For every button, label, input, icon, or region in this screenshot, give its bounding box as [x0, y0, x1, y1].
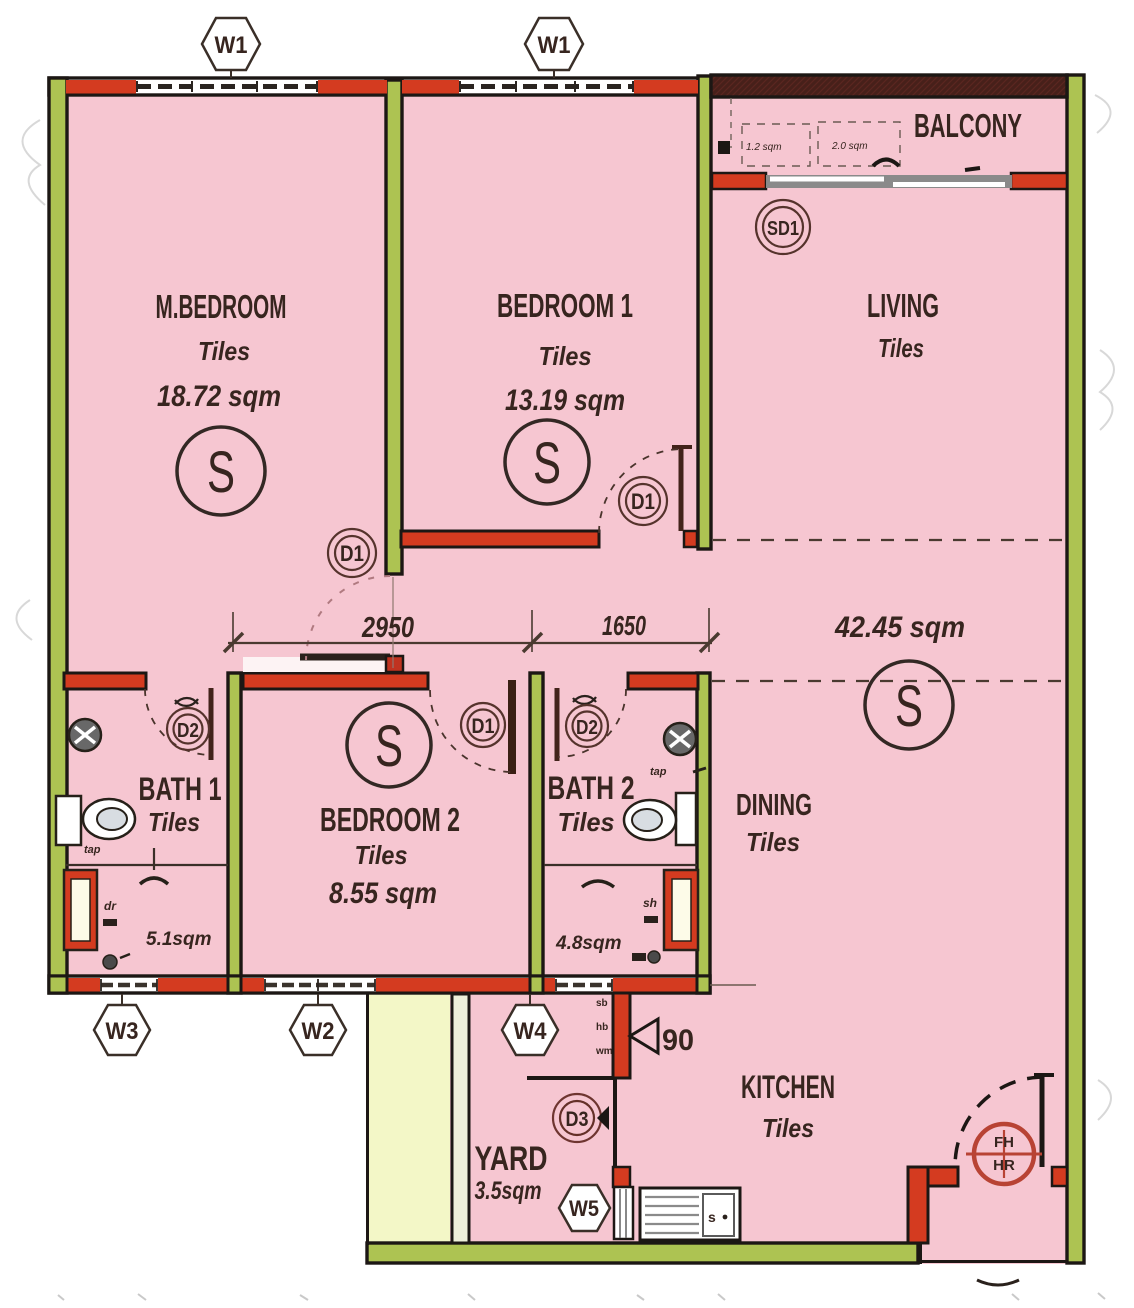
svg-text:BATH 1: BATH 1 [139, 771, 222, 807]
svg-text:Tiles: Tiles [355, 840, 408, 870]
svg-text:sh: sh [643, 896, 657, 910]
svg-text:D2: D2 [576, 717, 598, 739]
svg-text:W5: W5 [569, 1196, 599, 1221]
svg-text:W1: W1 [215, 32, 248, 59]
svg-text:tap: tap [84, 844, 101, 856]
svg-text:D1: D1 [340, 541, 364, 566]
svg-text:wm: wm [595, 1046, 613, 1057]
svg-text:LIVING: LIVING [867, 287, 939, 324]
svg-text:W1: W1 [538, 32, 571, 59]
svg-text:90: 90 [662, 1024, 694, 1057]
svg-text:KITCHEN: KITCHEN [741, 1069, 835, 1105]
svg-text:1.2 sqm: 1.2 sqm [746, 142, 782, 153]
svg-text:3.5sqm: 3.5sqm [475, 1177, 542, 1205]
svg-text:DINING: DINING [736, 787, 812, 822]
svg-text:Tiles: Tiles [148, 807, 200, 837]
svg-text:S: S [533, 431, 561, 496]
svg-text:D3: D3 [566, 1108, 589, 1131]
svg-text:2950: 2950 [361, 612, 414, 644]
svg-text:Tiles: Tiles [539, 341, 592, 371]
svg-text:BALCONY: BALCONY [914, 107, 1022, 144]
svg-text:BATH 2: BATH 2 [548, 770, 635, 806]
svg-text:tap: tap [650, 766, 667, 778]
svg-text:sb: sb [596, 998, 608, 1009]
svg-text:hb: hb [596, 1022, 608, 1033]
svg-text:13.19 sqm: 13.19 sqm [505, 384, 625, 417]
svg-text:s: s [708, 1209, 716, 1225]
svg-text:S: S [895, 674, 923, 739]
svg-text:4.8sqm: 4.8sqm [555, 933, 622, 954]
svg-text:dr: dr [104, 899, 117, 913]
svg-text:YARD: YARD [475, 1140, 548, 1178]
svg-text:W3: W3 [106, 1018, 139, 1045]
svg-text:Tiles: Tiles [746, 827, 800, 857]
svg-text:Tiles: Tiles [198, 336, 250, 366]
svg-text:SD1: SD1 [767, 218, 799, 240]
svg-text:1650: 1650 [602, 610, 646, 641]
svg-text:D2: D2 [177, 720, 199, 742]
svg-text:BEDROOM 1: BEDROOM 1 [497, 287, 633, 324]
svg-text:2.0 sqm: 2.0 sqm [831, 141, 868, 152]
svg-text:Tiles: Tiles [878, 333, 924, 363]
svg-text:D1: D1 [472, 715, 495, 738]
svg-text:BEDROOM 2: BEDROOM 2 [320, 801, 460, 838]
svg-text:W4: W4 [514, 1018, 548, 1045]
svg-text:FH: FH [994, 1134, 1014, 1151]
svg-text:42.45 sqm: 42.45 sqm [834, 611, 965, 644]
svg-text:5.1sqm: 5.1sqm [146, 929, 212, 950]
svg-text:S: S [375, 714, 403, 779]
svg-text:D1: D1 [631, 489, 655, 514]
svg-text:W2: W2 [302, 1018, 335, 1045]
svg-text:Tiles: Tiles [762, 1113, 814, 1143]
svg-text:Tiles: Tiles [558, 807, 615, 837]
svg-text:8.55 sqm: 8.55 sqm [329, 877, 437, 910]
svg-text:18.72 sqm: 18.72 sqm [157, 380, 281, 413]
svg-text:HR: HR [993, 1157, 1015, 1174]
svg-text:S: S [207, 440, 235, 505]
svg-text:M.BEDROOM: M.BEDROOM [156, 288, 287, 325]
